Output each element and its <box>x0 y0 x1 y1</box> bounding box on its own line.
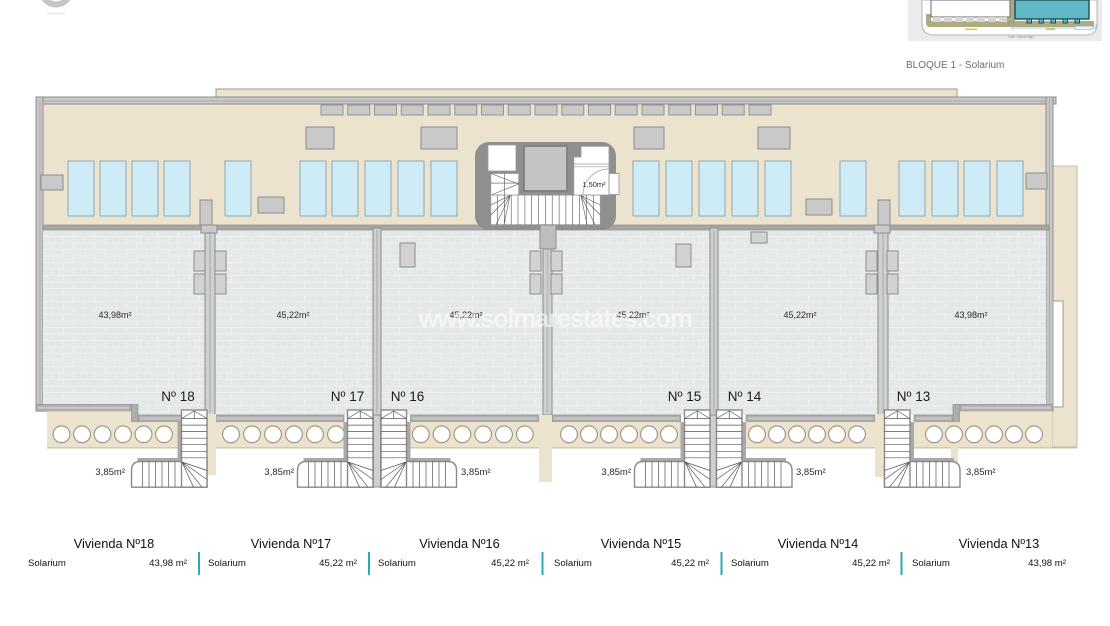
svg-text:43,98 m²: 43,98 m² <box>1028 558 1067 569</box>
svg-text:www.solmarestates.com: www.solmarestates.com <box>417 303 691 333</box>
svg-text:3,85m²: 3,85m² <box>966 467 996 478</box>
svg-text:3,85m²: 3,85m² <box>461 467 491 478</box>
svg-text:Solarium: Solarium <box>28 558 66 569</box>
svg-text:1,50m²: 1,50m² <box>582 180 606 189</box>
svg-text:43,98m²: 43,98m² <box>98 310 131 320</box>
svg-text:3,85m²: 3,85m² <box>601 467 631 478</box>
svg-text:Nº 16: Nº 16 <box>391 389 424 404</box>
svg-text:Solarium: Solarium <box>378 558 416 569</box>
svg-text:45,22m²: 45,22m² <box>783 310 816 320</box>
svg-text:45,22 m²: 45,22 m² <box>852 558 891 569</box>
svg-text:43,98m²: 43,98m² <box>954 310 987 320</box>
svg-text:Calle / Monte Bajo: Calle / Monte Bajo <box>1008 35 1034 39</box>
svg-text:Nº 17: Nº 17 <box>331 389 364 404</box>
svg-text:3,85m²: 3,85m² <box>95 467 125 478</box>
svg-text:45,22 m²: 45,22 m² <box>671 558 710 569</box>
svg-text:Vivienda Nº16: Vivienda Nº16 <box>419 536 500 551</box>
svg-text:Nº 14: Nº 14 <box>728 389 762 404</box>
svg-text:45,22 m²: 45,22 m² <box>491 558 530 569</box>
svg-text:Solarium: Solarium <box>208 558 246 569</box>
svg-text:BLOQUE 1 - Solarium: BLOQUE 1 - Solarium <box>906 60 1004 71</box>
svg-text:Solarium: Solarium <box>731 558 769 569</box>
svg-text:43,98 m²: 43,98 m² <box>149 558 188 569</box>
svg-text:3,85m²: 3,85m² <box>264 467 294 478</box>
svg-text:Solarium: Solarium <box>554 558 592 569</box>
svg-text:45,22m²: 45,22m² <box>276 310 309 320</box>
svg-text:3,85m²: 3,85m² <box>796 467 826 478</box>
svg-text:Vivienda Nº17: Vivienda Nº17 <box>251 536 332 551</box>
svg-text:Vivienda Nº18: Vivienda Nº18 <box>74 536 155 551</box>
svg-text:Vivienda Nº14: Vivienda Nº14 <box>778 536 859 551</box>
svg-text:Solarium: Solarium <box>912 558 950 569</box>
svg-text:Vivienda Nº13: Vivienda Nº13 <box>959 536 1040 551</box>
svg-text:Nº 15: Nº 15 <box>668 389 701 404</box>
svg-text:45,22 m²: 45,22 m² <box>319 558 358 569</box>
svg-text:Nº 13: Nº 13 <box>897 389 930 404</box>
svg-text:Vivienda Nº15: Vivienda Nº15 <box>601 536 682 551</box>
svg-text:Nº 18: Nº 18 <box>161 389 194 404</box>
